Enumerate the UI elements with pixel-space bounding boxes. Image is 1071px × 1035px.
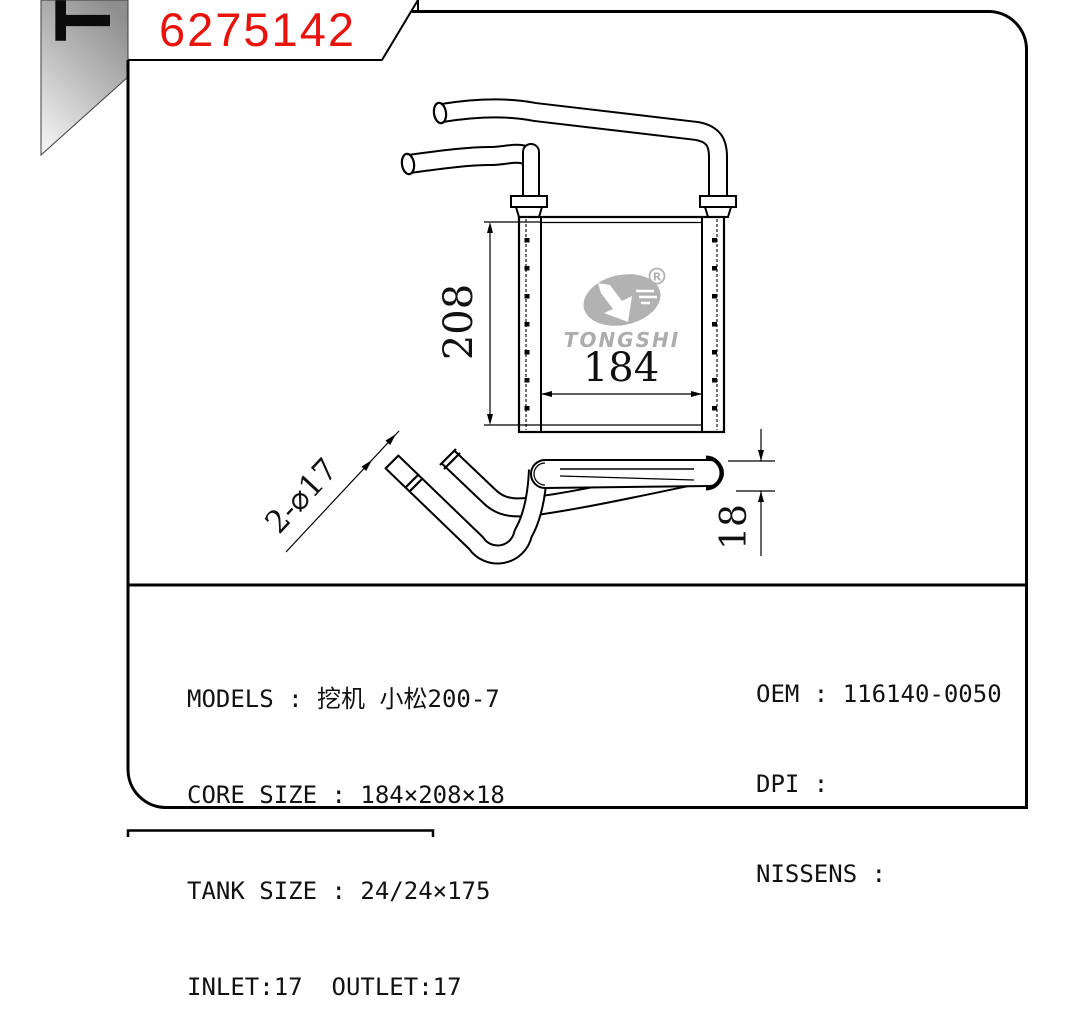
drawing-page: { "frame": { "background": "#ffffff", "l…: [0, 0, 1071, 837]
left-fitting: [511, 196, 547, 217]
spec-core-size: CORE SIZE : 184×208×18: [187, 779, 505, 811]
spec-tank-size: TANK SIZE : 24/24×175: [187, 875, 505, 907]
registered-mark-letter: R: [653, 271, 662, 284]
arrow-down: [758, 450, 764, 461]
dim-core-depth: 18: [714, 429, 775, 556]
spec-dpi: DPI :: [756, 769, 1002, 799]
spec-inlet-outlet: INLET:17 OUTLET:17: [187, 971, 505, 1003]
arrow-down: [487, 414, 493, 425]
spec-block-right: OEM : 116140-0050 DPI : NISSENS :: [756, 619, 1002, 919]
part-number: 6275142: [159, 2, 356, 57]
right-fitting: [700, 196, 736, 217]
spec-oem: OEM : 116140-0050: [756, 679, 1002, 709]
fitting-collar: [700, 196, 736, 207]
corner-banner: T: [41, 0, 129, 155]
arrow-up: [487, 222, 493, 233]
dim-label-208: 208: [436, 284, 482, 360]
spec-nissens: NISSENS :: [756, 859, 1002, 889]
bottom-view: 18 2-⌀17: [258, 429, 775, 556]
dim-label-184: 184: [583, 345, 659, 391]
dim-label-18: 18: [714, 504, 755, 550]
top-left-pipe: [401, 152, 531, 201]
fitting-collar: [511, 196, 547, 207]
fitting-neck: [516, 207, 542, 217]
front-view: R TONGSHI 208 184: [401, 102, 736, 432]
spec-models: MODELS : 挖机 小松200-7: [187, 683, 505, 715]
fitting-neck: [705, 207, 731, 217]
spec-block-left: MODELS : 挖机 小松200-7 CORE SIZE : 184×208×…: [187, 619, 505, 1035]
banner-letter: T: [42, 0, 129, 41]
band-outline: [531, 460, 723, 488]
dim-label-pipe: 2-⌀17: [258, 452, 345, 541]
arrow-up: [758, 491, 764, 502]
core-edge-band: [531, 458, 723, 489]
dim-pipe-diameter: 2-⌀17: [258, 431, 399, 552]
